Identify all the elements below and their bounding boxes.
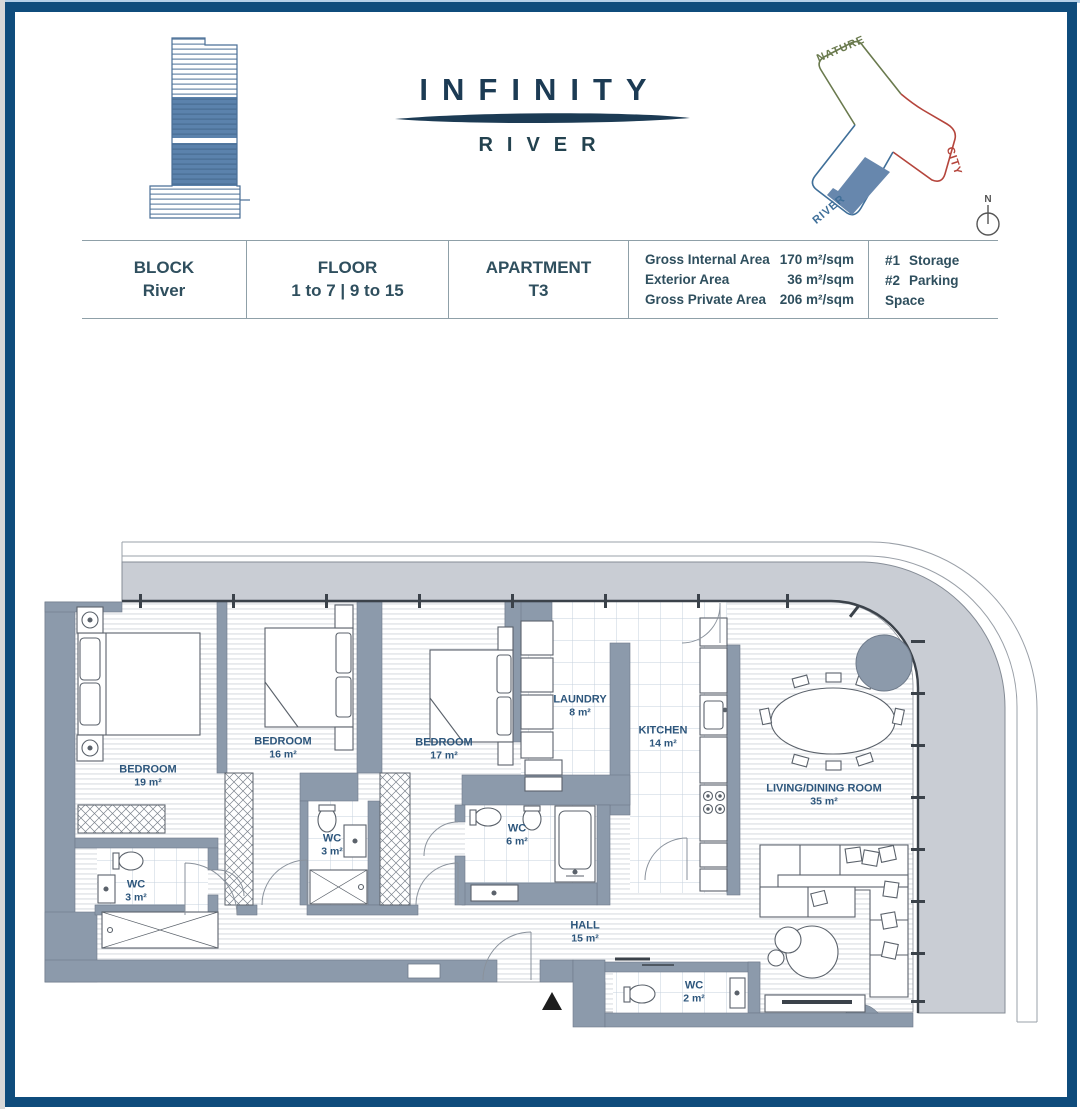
room-label-bedroom-16: BEDROOM16 m² <box>254 736 311 761</box>
entrance-marker <box>542 992 562 1010</box>
brochure-page: INFINITY RIVER NATURE CITY RIVER N BLOCK… <box>0 0 1080 1109</box>
room-label-wc-3b: WC3 m² <box>321 833 343 858</box>
table-col-apartment: APARTMENT T3 <box>448 241 628 318</box>
room-label-living-dining: LIVING/DINING ROOM35 m² <box>766 783 882 808</box>
room-label-wc-6: WC6 m² <box>506 823 528 848</box>
room-label-bedroom-17: BEDROOM17 m² <box>415 737 472 762</box>
table-col-extras: #1Storage #2Parking Space <box>868 241 998 318</box>
table-col-block: BLOCK River <box>82 241 246 318</box>
room-label-hall: HALL15 m² <box>570 920 599 945</box>
room-label-bedroom-19: BEDROOM19 m² <box>119 764 176 789</box>
room-label-laundry: LAUNDRY8 m² <box>553 694 606 719</box>
svg-text:N: N <box>984 194 991 205</box>
tower-logo-icon <box>148 30 252 226</box>
brand-title-block: INFINITY RIVER <box>330 72 750 157</box>
site-label-city: CITY <box>944 145 964 176</box>
compass-icon: N <box>960 188 1020 243</box>
brand-subtitle: RIVER <box>330 134 750 157</box>
wall-niche <box>408 964 440 978</box>
table-col-floor: FLOOR 1 to 7 | 9 to 15 <box>246 241 448 318</box>
brand-title: INFINITY <box>330 72 750 108</box>
swoosh-underline-icon <box>330 110 750 128</box>
site-label-nature: NATURE <box>815 34 867 65</box>
unit-info-table: BLOCK River FLOOR 1 to 7 | 9 to 15 APART… <box>82 240 998 319</box>
table-col-areas: Gross Internal Area170 m²/sqm Exterior A… <box>628 241 868 318</box>
floor-plan <box>0 530 1080 1050</box>
room-label-wc-2: WC2 m² <box>683 980 705 1005</box>
structural-column <box>856 635 912 691</box>
site-diagram: NATURE CITY RIVER <box>795 22 985 232</box>
room-label-kitchen: KITCHEN14 m² <box>639 725 688 750</box>
room-label-wc-3a: WC3 m² <box>125 879 147 904</box>
